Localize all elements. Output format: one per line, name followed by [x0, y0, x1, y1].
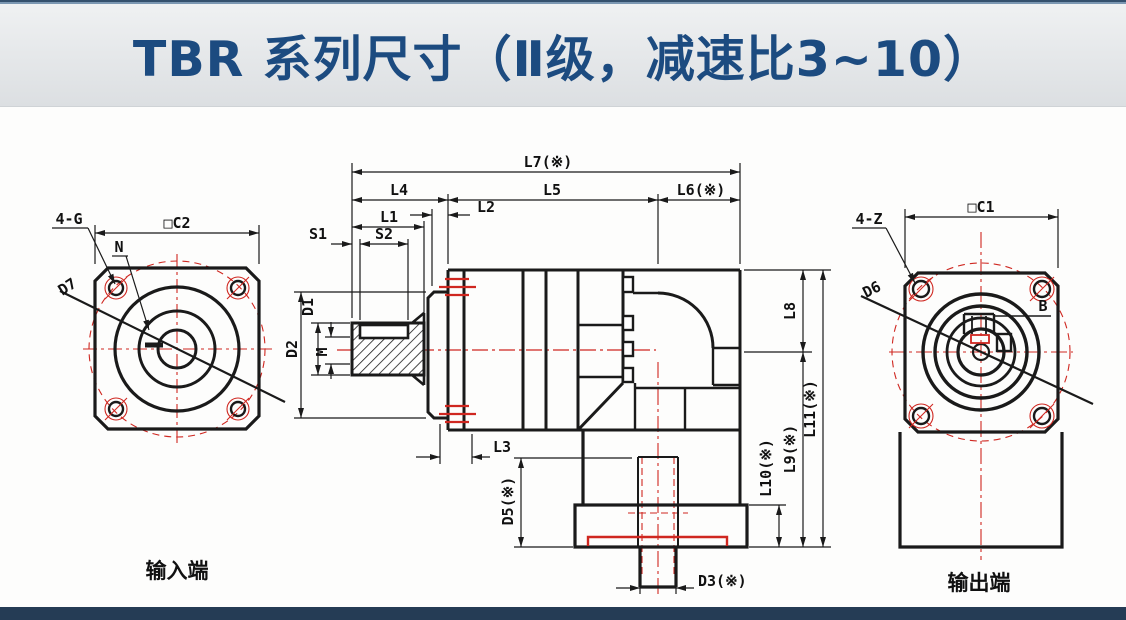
dim-label-d3: D3(※) [698, 572, 747, 590]
dim-label-l9: L9(※) [781, 425, 799, 474]
input-shaft-keyway [360, 325, 408, 338]
dim-label-l10: L10(※) [757, 439, 775, 497]
dim-label-d1: D1 [299, 298, 317, 316]
dim-label-l1: L1 [380, 208, 398, 226]
dim-label-l2: L2 [477, 198, 495, 216]
dim-label-l8: L8 [781, 302, 799, 320]
dim-label-4g: 4-G [55, 210, 82, 228]
bottom-accent-bar [0, 607, 1126, 620]
dim-label-4z: 4-Z [855, 210, 882, 228]
input-end-caption: 输入端 [146, 559, 209, 583]
dim-label-m: M [313, 347, 331, 356]
dim-label-square-c1: □C1 [967, 198, 994, 216]
dim-label-d2: D2 [283, 340, 301, 358]
dim-label-d5: D5(※) [499, 477, 517, 526]
dim-label-l7: L7(※) [524, 153, 573, 171]
output-housing [575, 430, 747, 587]
dim-label-l4: L4 [390, 181, 408, 199]
input-flange-view: □C2 4-G N D7 输入端 [52, 210, 285, 583]
output-flange-view: □C1 4-Z D6 B 输出端 [852, 198, 1093, 595]
dim-label-square-c2: □C2 [163, 214, 190, 232]
dim-label-d7: D7 [55, 274, 80, 299]
housing-inner-lines [578, 277, 740, 430]
input-flange-plate [428, 292, 448, 418]
output-end-caption: 输出端 [948, 571, 1011, 595]
dim-label-s2: S2 [375, 225, 393, 243]
dim-label-l3: L3 [493, 438, 511, 456]
dim-label-s1: S1 [309, 225, 327, 243]
dimension-drawing: □C2 4-G N D7 输入端 [0, 0, 1126, 620]
dim-label-l5: L5 [543, 181, 561, 199]
dim-label-n: N [114, 238, 123, 256]
section-view: L7(※) L4 L5 L6(※) L2 L1 S1 S2 D1 D2 M L3… [283, 153, 831, 597]
dim-label-l6: L6(※) [677, 181, 726, 199]
dim-label-b: B [1038, 297, 1047, 315]
dim-label-l11: L11(※) [801, 380, 819, 438]
